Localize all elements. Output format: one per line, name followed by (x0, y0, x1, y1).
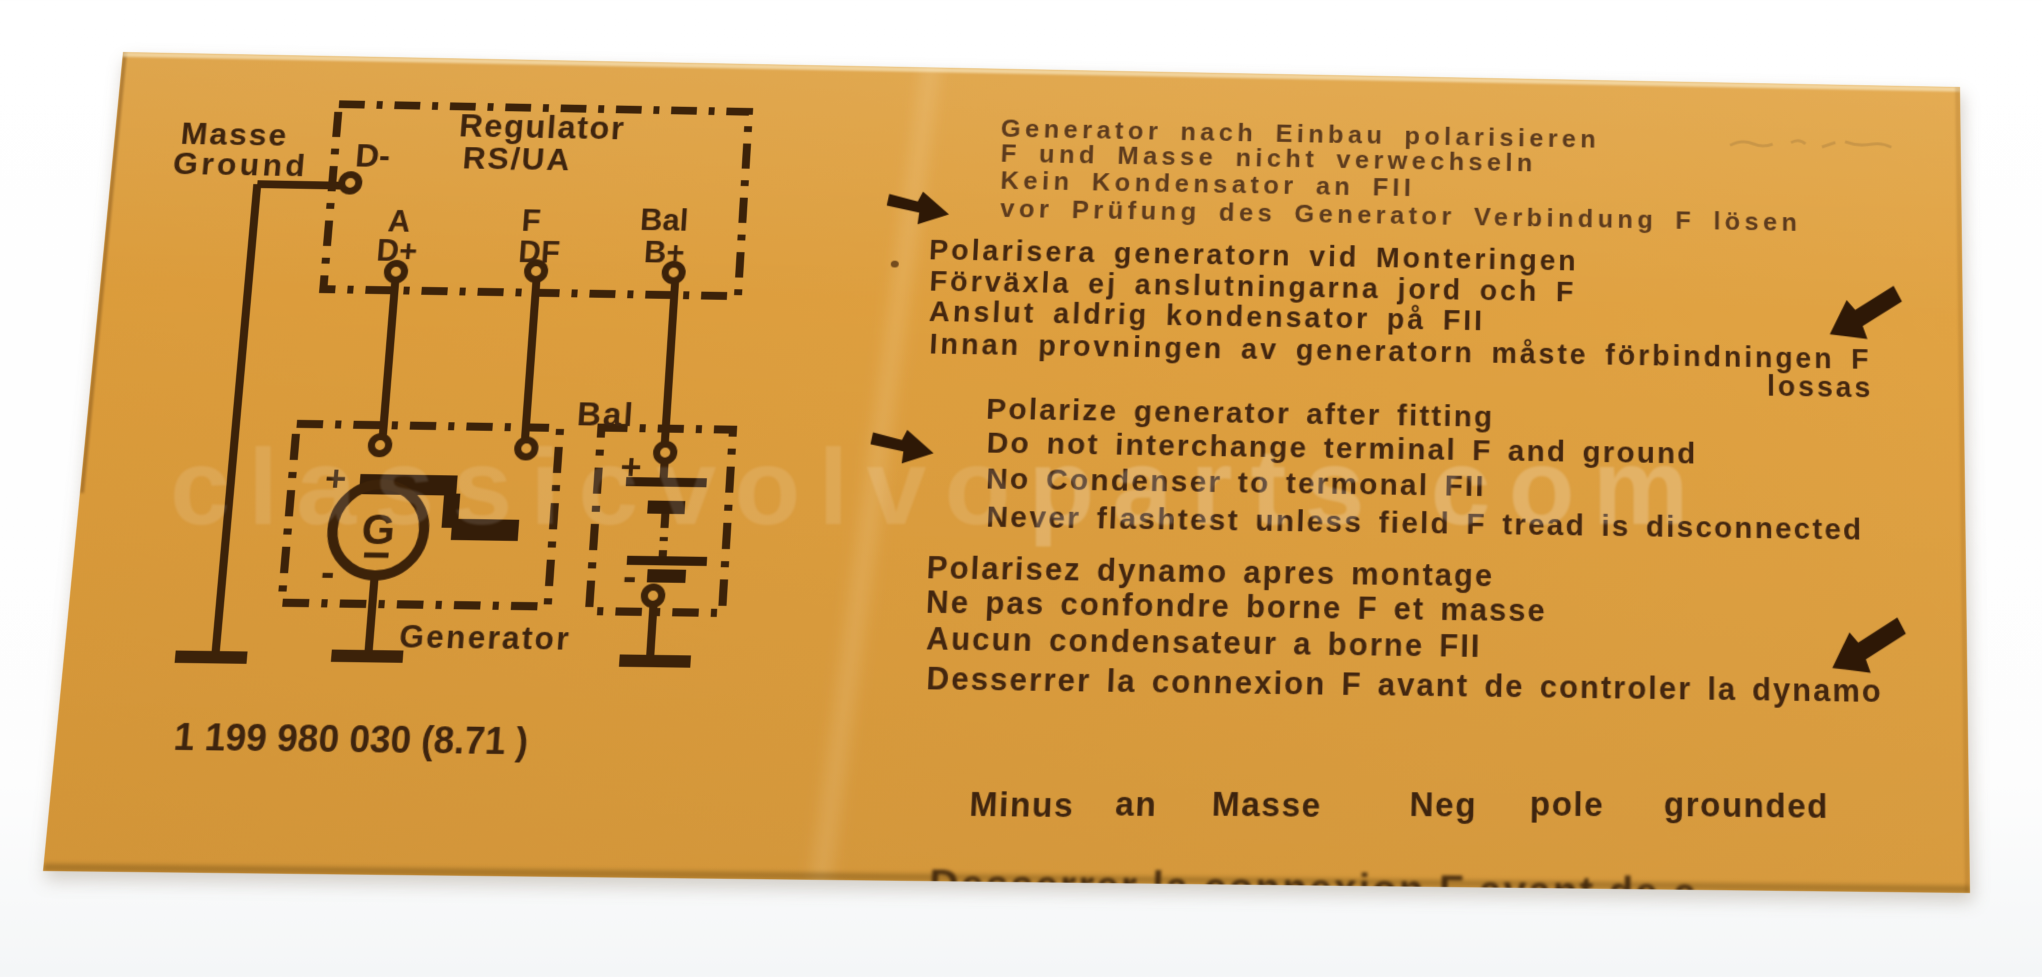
svg-text:-: - (622, 555, 638, 600)
svg-text:-: - (319, 551, 336, 596)
